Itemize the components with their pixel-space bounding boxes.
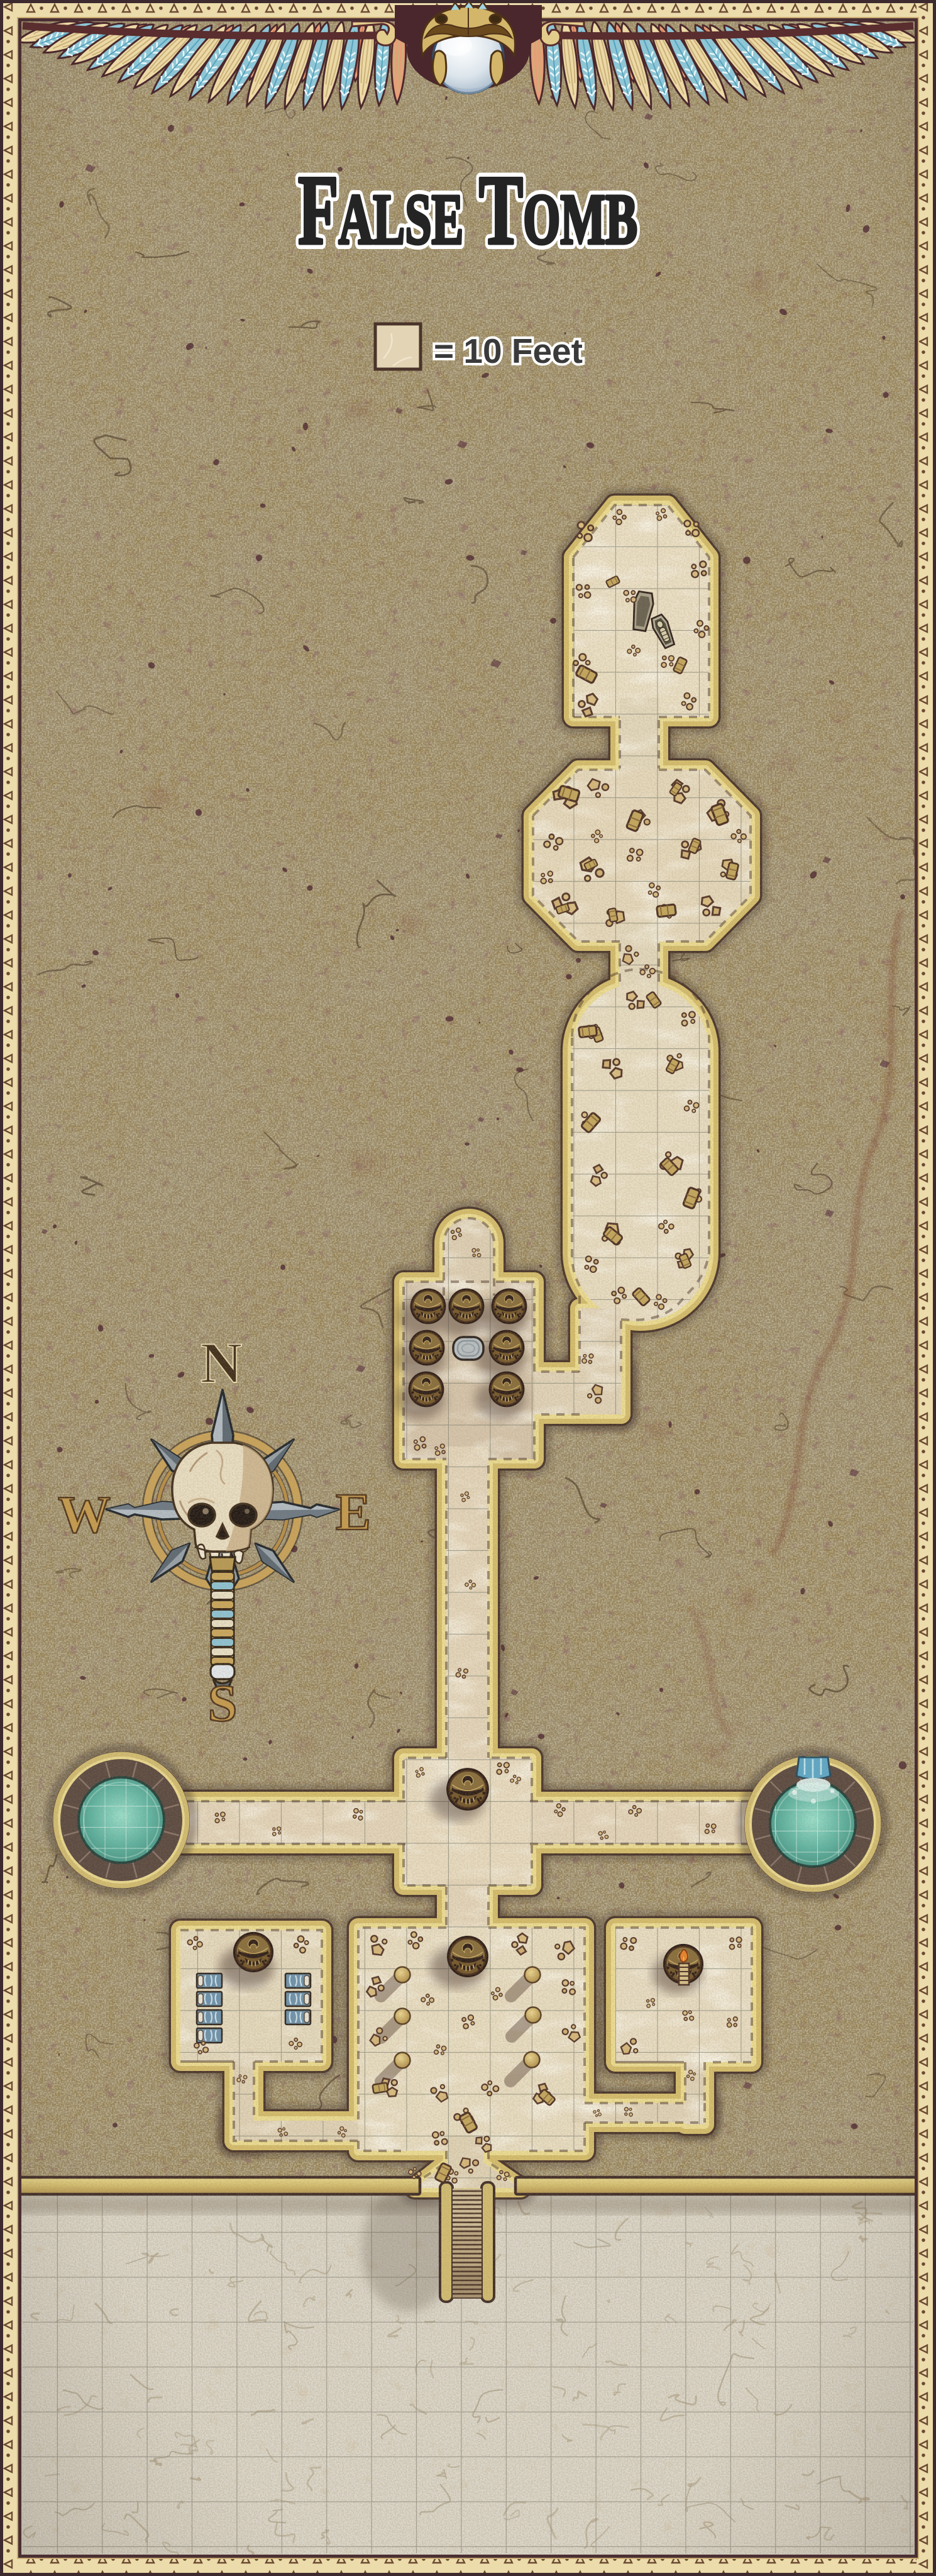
svg-text:= 10 Feet: = 10 Feet	[434, 331, 583, 370]
